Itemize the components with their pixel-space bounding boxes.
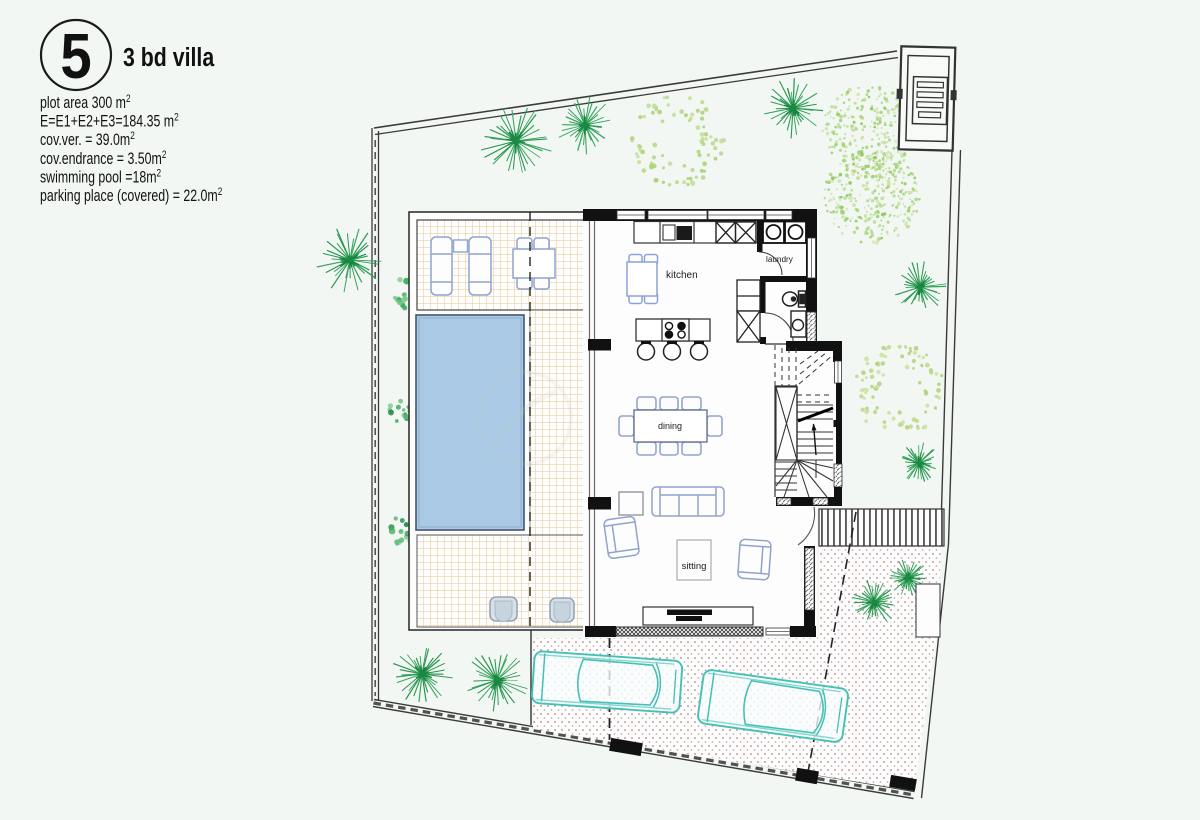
svg-text:cov.ver. = 39.0m2: cov.ver. = 39.0m2 [40,130,135,150]
svg-text:swimming pool =18m2: swimming pool =18m2 [40,167,161,187]
svg-text:parking place (covered) = 22.0: parking place (covered) = 22.0m2 [40,186,222,206]
svg-text:5: 5 [60,20,91,92]
svg-text:E=E1+E2+E3=184.35 m2: E=E1+E2+E3=184.35 m2 [40,112,179,132]
svg-text:kitchen: kitchen [666,270,698,281]
svg-text:plot area 300 m2: plot area 300 m2 [40,93,131,113]
svg-text:3 bd villa: 3 bd villa [123,43,215,73]
svg-text:cov.endrance = 3.50m2: cov.endrance = 3.50m2 [40,149,166,169]
svg-text:dining: dining [658,421,682,431]
svg-text:sitting: sitting [682,561,707,572]
svg-text:laundry: laundry [766,255,794,264]
